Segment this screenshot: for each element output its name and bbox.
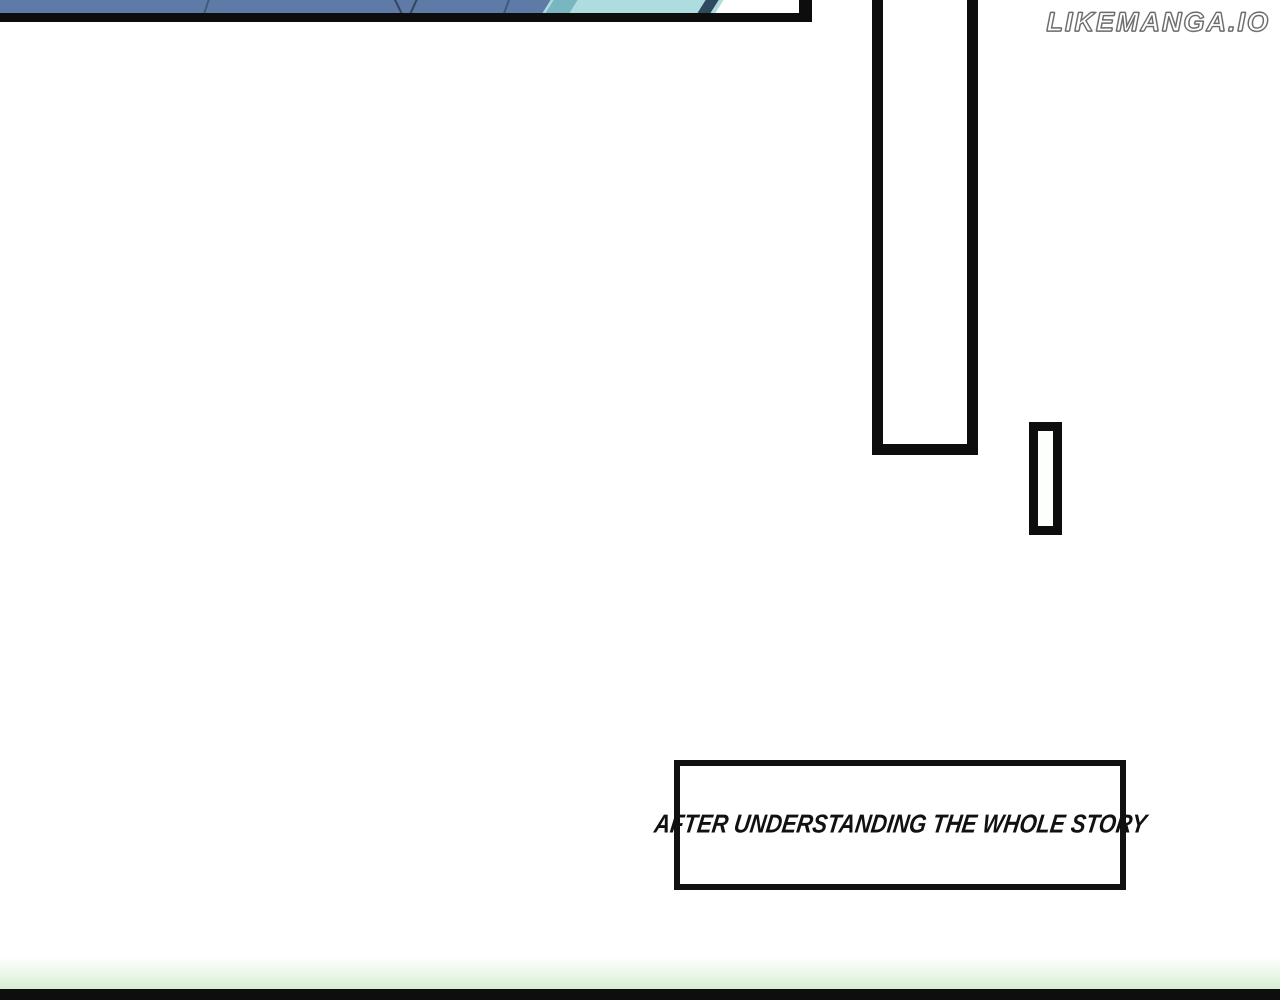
site-watermark: LIKEMANGA.IO bbox=[1047, 7, 1271, 38]
small-bar-panel bbox=[1029, 422, 1062, 535]
art-white-wedge bbox=[709, 0, 799, 13]
art-fold-line bbox=[404, 0, 422, 13]
top-left-panel bbox=[0, 0, 812, 22]
top-left-panel-art bbox=[0, 0, 799, 13]
caption-text: AFTER UNDERSTANDING THE WHOLE STORY bbox=[652, 810, 1148, 840]
caption-box: AFTER UNDERSTANDING THE WHOLE STORY bbox=[674, 760, 1126, 890]
manga-page: LIKEMANGA.IO AFTER UNDERSTANDING THE WHO… bbox=[0, 0, 1280, 1000]
art-fold-line bbox=[498, 0, 514, 13]
art-fold-line bbox=[389, 0, 408, 13]
tall-empty-panel bbox=[872, 0, 978, 455]
next-panel-glow bbox=[0, 957, 1280, 989]
next-panel-border bbox=[0, 989, 1280, 1000]
art-fold-line bbox=[199, 0, 213, 13]
